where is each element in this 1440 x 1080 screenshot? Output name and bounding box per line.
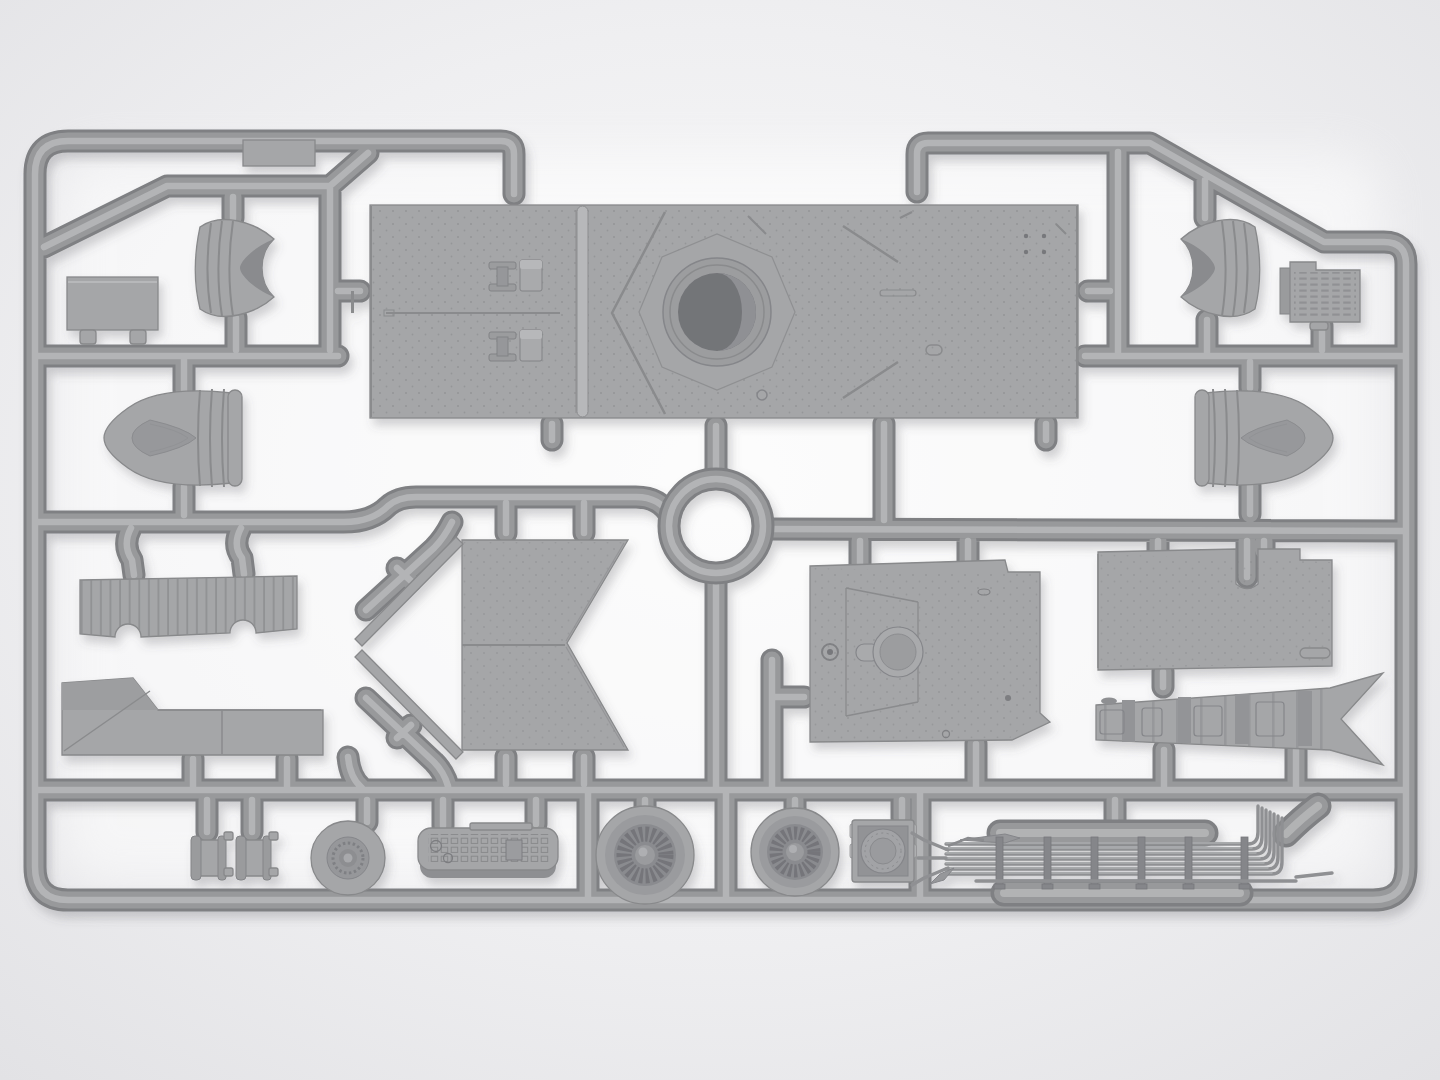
screenshot-root [0, 0, 1440, 1080]
cowl-right [1181, 220, 1260, 317]
side-panel [1098, 549, 1332, 670]
engine-block-right [1280, 262, 1360, 330]
hatch-block [850, 820, 916, 882]
cowl-left [196, 220, 275, 317]
fan-wheel-large [596, 806, 694, 904]
floor-panel [810, 560, 1050, 742]
sprue-tab [243, 140, 315, 166]
hub-wheel [311, 821, 385, 895]
instrument-panel [418, 823, 558, 878]
grille-panel [80, 576, 297, 637]
sprue-photo [0, 0, 1440, 1080]
fan-wheel-small [751, 808, 839, 896]
